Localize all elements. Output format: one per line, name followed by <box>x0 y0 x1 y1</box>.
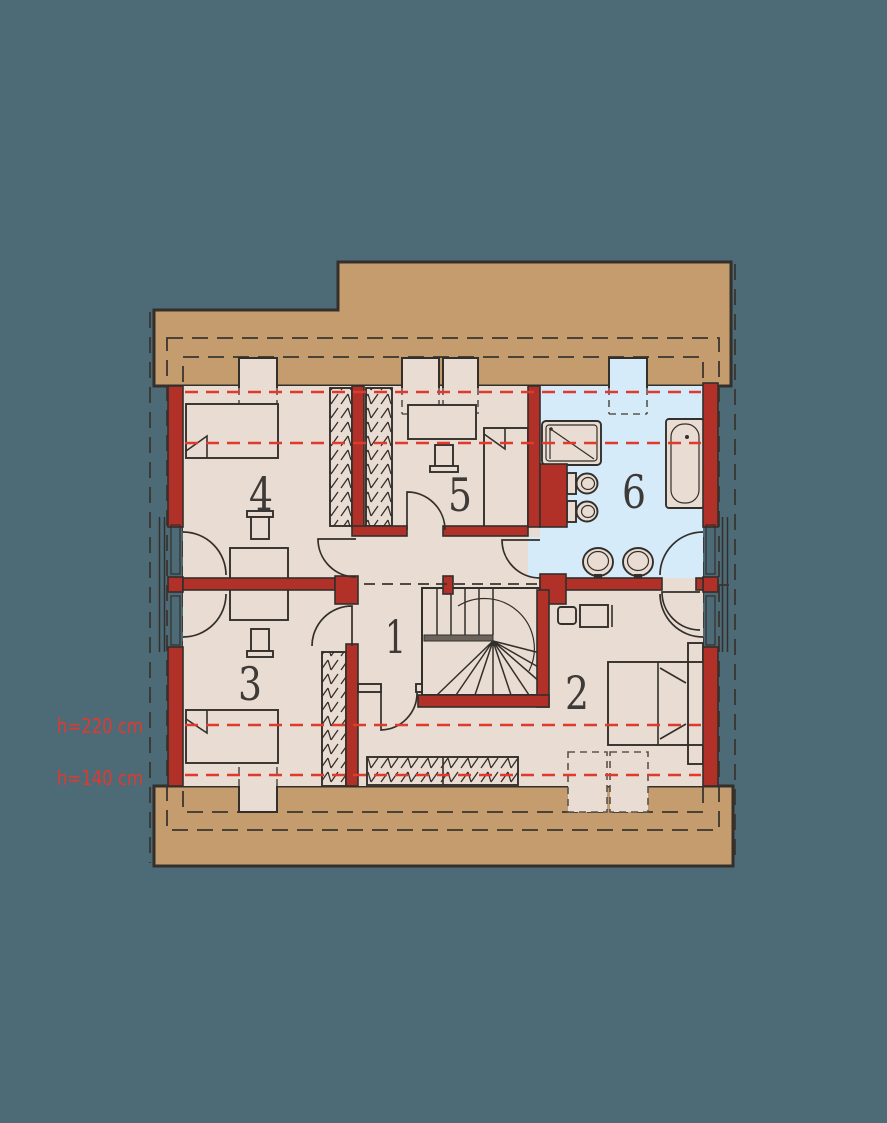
attic-floor-plan: 1 2 3 4 5 6 h=220 cm h=140 cm <box>0 0 887 1123</box>
exterior-wall-left-upper <box>168 386 183 527</box>
room-6-label: 6 <box>622 465 646 519</box>
partition-closet-east <box>416 684 422 692</box>
bidet <box>567 501 598 522</box>
toilet <box>567 473 598 494</box>
wall-room5-south-west <box>352 526 407 536</box>
window-left-lower <box>171 596 180 645</box>
room-1-label: 1 <box>385 610 406 664</box>
exterior-wall-right-upper <box>703 383 718 527</box>
wall-stairs-stub <box>443 576 453 594</box>
nightstand-room2-bottom <box>688 745 703 764</box>
room-2-label: 2 <box>565 666 589 720</box>
wall-stairs-east <box>537 590 549 707</box>
bathtub <box>666 419 704 508</box>
chair-room3 <box>247 629 273 657</box>
wardrobe-room3 <box>322 652 346 786</box>
bed-room4 <box>186 404 278 458</box>
wall-room4-room5 <box>352 386 364 527</box>
roof-window-room2-right <box>610 752 648 812</box>
wall-bathroom-west <box>528 386 540 527</box>
height-annotation-220: h=220 cm <box>57 714 143 738</box>
window-right-lower <box>706 596 715 645</box>
window-left-upper <box>171 525 180 574</box>
desk-room2 <box>580 605 612 627</box>
exterior-wall-right-middle <box>703 577 718 592</box>
wardrobe-room5 <box>366 388 392 526</box>
double-bed-room2 <box>608 662 688 745</box>
wall-stairs-south <box>418 695 549 707</box>
window-right-upper <box>706 525 715 574</box>
exterior-wall-left-lower <box>168 647 183 786</box>
wall-room5-south-east <box>443 526 528 536</box>
railing-left <box>160 517 165 652</box>
exterior-wall-left-middle <box>168 577 183 592</box>
floor-plan-page: 1 2 3 4 5 6 h=220 cm h=140 cm <box>0 0 887 1123</box>
wall-middle-left-jamb <box>335 576 358 604</box>
floor-bathroom-doorway <box>528 537 540 577</box>
wardrobe-room4 <box>330 388 352 526</box>
height-annotation-140: h=140 cm <box>57 766 143 790</box>
height-annotations: h=220 cm h=140 cm <box>57 714 143 790</box>
chair-room2 <box>558 607 576 624</box>
stair-handrail <box>424 635 493 641</box>
roof-window-room2-left <box>568 752 607 812</box>
exterior-wall-right-lower <box>703 647 718 786</box>
room-5-label: 5 <box>448 468 472 522</box>
dormer-window-bathroom <box>609 358 647 414</box>
room-3-label: 3 <box>238 657 262 711</box>
wall-middle-left <box>183 578 335 590</box>
wall-hall-west <box>346 644 358 786</box>
wall-bathroom-duct <box>540 464 567 527</box>
wall-middle-right-end <box>696 578 703 590</box>
nightstand-room2-top <box>688 643 703 662</box>
desk-room5 <box>408 405 476 439</box>
partition-closet-west <box>358 684 381 692</box>
bed-room3 <box>186 710 278 763</box>
wardrobe-closet <box>367 757 518 785</box>
room-4-label: 4 <box>249 467 273 521</box>
